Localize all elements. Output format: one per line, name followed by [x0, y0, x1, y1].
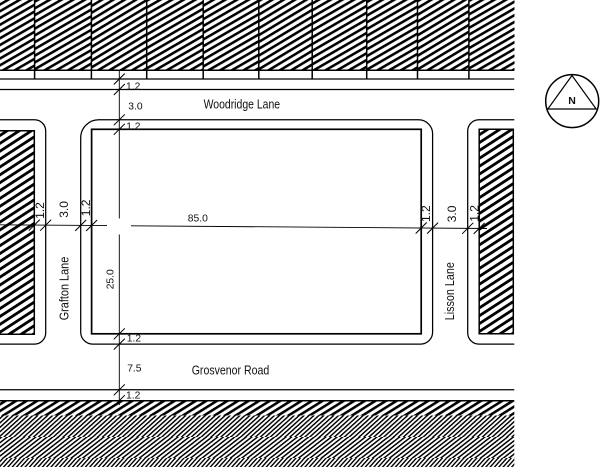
svg-text:7.5: 7.5 [127, 363, 142, 374]
svg-text:1.2: 1.2 [33, 202, 47, 219]
svg-text:1.2: 1.2 [467, 205, 481, 222]
svg-text:N: N [568, 95, 576, 107]
svg-text:3.0: 3.0 [57, 201, 71, 218]
svg-text:1.2: 1.2 [126, 121, 141, 132]
svg-text:Lisson Lane: Lisson Lane [442, 262, 457, 320]
svg-text:85.0: 85.0 [188, 214, 208, 225]
svg-text:Grafton Lane: Grafton Lane [56, 257, 71, 321]
svg-text:1.2: 1.2 [419, 205, 433, 222]
svg-text:1.2: 1.2 [127, 334, 142, 345]
svg-text:1.2: 1.2 [126, 390, 141, 401]
svg-text:Woodridge Lane: Woodridge Lane [204, 96, 281, 111]
svg-text:3.0: 3.0 [128, 102, 143, 113]
svg-text:25.0: 25.0 [106, 269, 117, 289]
svg-text:Grosvenor Road: Grosvenor Road [192, 362, 270, 377]
svg-text:1.2: 1.2 [126, 81, 141, 92]
svg-text:1.2: 1.2 [79, 199, 93, 216]
svg-text:3.0: 3.0 [445, 205, 459, 222]
